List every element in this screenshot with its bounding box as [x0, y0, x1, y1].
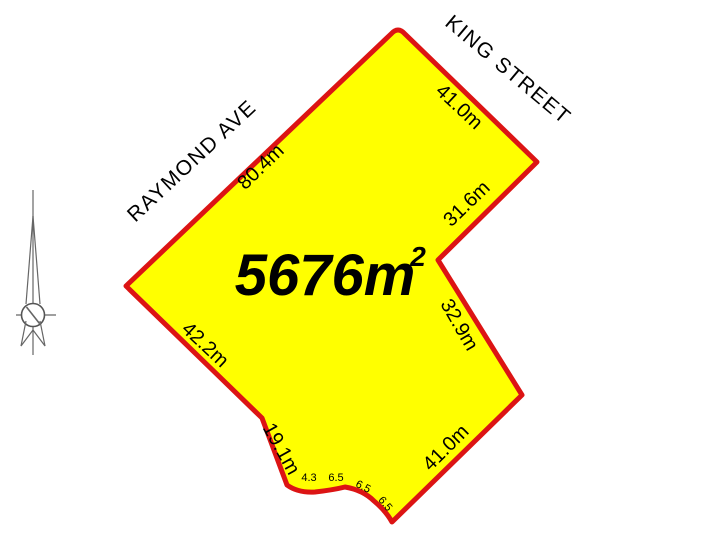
- parcel-area-exponent: 2: [409, 241, 426, 272]
- land-plot-plan: RAYMOND AVE KING STREET 80.4m 41.0m 31.6…: [0, 0, 711, 533]
- plan-drawing: RAYMOND AVE KING STREET 80.4m 41.0m 31.6…: [0, 0, 711, 533]
- dimension-culdesac-segment-1: 4.3: [301, 472, 316, 484]
- parcel-area-label: 5676m: [235, 243, 416, 308]
- dimension-culdesac-segment-2: 6.5: [328, 472, 343, 484]
- north-compass-icon: [16, 190, 56, 355]
